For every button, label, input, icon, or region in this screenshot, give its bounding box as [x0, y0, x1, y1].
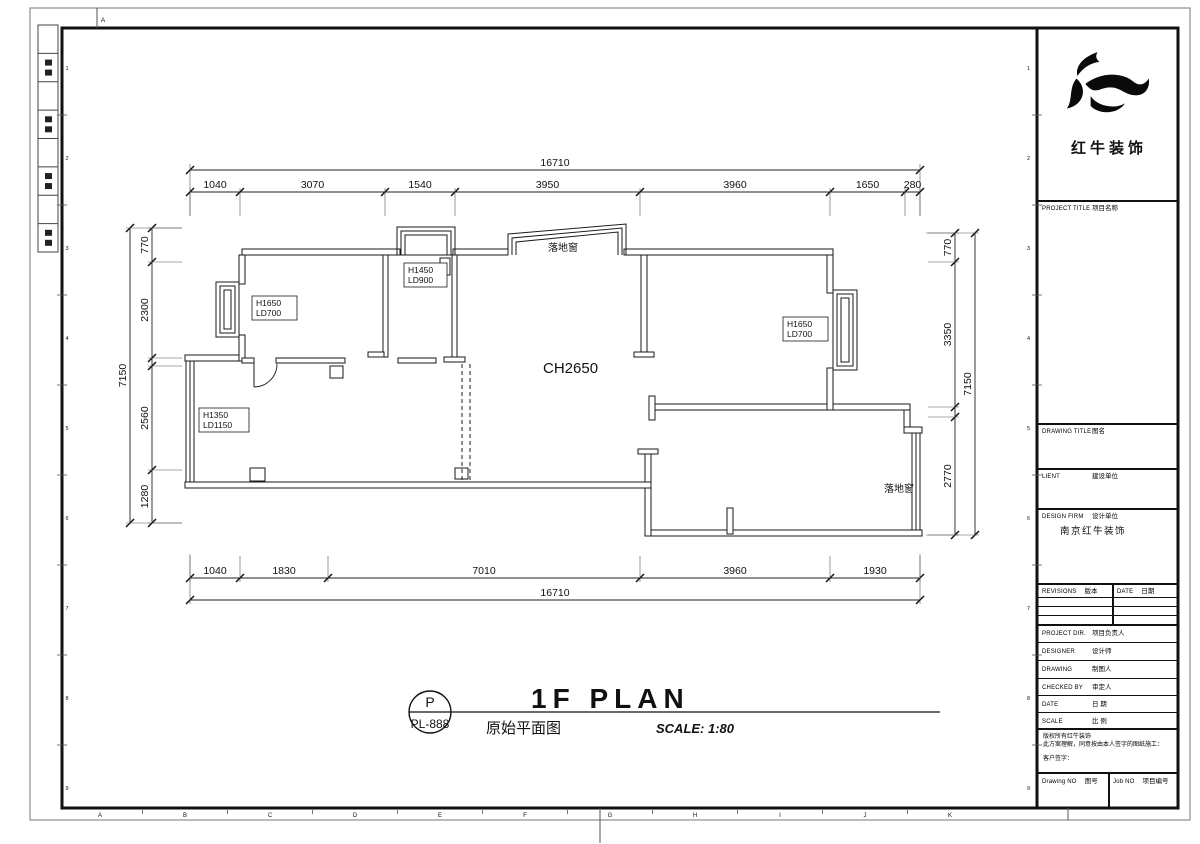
svg-text:H1350: H1350 [203, 410, 228, 420]
svg-text:LD700: LD700 [787, 329, 812, 339]
grid-number: 3 [1027, 246, 1030, 252]
grid-number: 8 [1027, 696, 1030, 702]
grid-number: 6 [65, 516, 68, 522]
drawing-sheet: { "sheet": { "top_left_grid_letter": "A"… [0, 0, 1200, 844]
titleblock-row-date: DATE日 期 [1042, 698, 1107, 708]
titleblock-divider [1038, 615, 1177, 616]
dimension-value: 2300 [139, 298, 151, 322]
design-firm-value: 南京红牛装饰 [1060, 523, 1126, 537]
grid-letter: D [353, 813, 358, 819]
grid-number: 7 [1027, 606, 1030, 612]
grid-number: 9 [65, 786, 68, 792]
plan-title-cn: 原始平面图 [486, 720, 561, 737]
titleblock-row-scale: SCALE比 例 [1042, 715, 1107, 725]
dimension-value: 1650 [856, 179, 880, 191]
svg-text:LD1150: LD1150 [203, 420, 232, 430]
floor-plan-walls [185, 249, 922, 536]
dimension-value: 2560 [139, 406, 151, 430]
titleblock-row-checked-by: CHECKED BY审定人 [1042, 681, 1112, 691]
grid-number: 5 [65, 426, 68, 432]
column-stub [250, 468, 265, 481]
svg-text:LD900: LD900 [408, 275, 433, 285]
titleblock-row-design-firm: DESIGN FIRM设计单位 [1042, 510, 1118, 520]
window-tag-top: H1450 LD900 [404, 263, 447, 287]
titleblock-row-client: LIENT建设单位 [1042, 470, 1118, 480]
fold-strip-mark [45, 116, 52, 122]
fold-strip-mark [45, 173, 52, 179]
grid-number: 9 [1027, 786, 1030, 792]
window-tag-left-lower: H1350 LD1150 [199, 408, 249, 432]
titleblock-row-designer: DESIGNER设计师 [1042, 645, 1112, 655]
dimension-value: 16710 [540, 587, 569, 599]
grid-letter: H [693, 813, 697, 819]
window-tag-right-bay: H1650 LD700 [783, 317, 828, 341]
grid-number: 4 [65, 336, 68, 342]
sheet-canvas: A [0, 0, 1200, 844]
grid-number: 3 [65, 246, 68, 252]
dimension-value: 16710 [540, 157, 569, 169]
titleblock-row-drawing: DRAWING制图人 [1042, 663, 1112, 673]
grid-letter: A [98, 813, 102, 819]
grid-number: 8 [65, 696, 68, 702]
number-column-divider [1108, 772, 1110, 808]
titleblock-row-drawing-title: DRAWING TITLE图名 [1042, 425, 1105, 435]
grid-number: 5 [1027, 426, 1030, 432]
company-logo [1066, 48, 1154, 132]
dimension-value: 280 [904, 179, 922, 191]
dimension-value: 770 [942, 239, 954, 257]
titleblock-divider [1038, 695, 1177, 696]
grid-number: 7 [65, 606, 68, 612]
dimension-value: 1280 [139, 485, 151, 509]
dimension-value: 7010 [472, 565, 496, 577]
floor-plan-openings [254, 363, 470, 482]
fold-strip-mark [45, 60, 52, 66]
fold-strip-mark [45, 240, 52, 246]
grid-letter: B [183, 813, 187, 819]
fold-strip-mark [45, 70, 52, 76]
dimension-value: 3350 [942, 323, 954, 347]
revisions-column-divider [1112, 583, 1114, 624]
dimension-value: 2770 [942, 464, 954, 488]
grid-number: 2 [1027, 156, 1030, 162]
titleblock-divider [1038, 660, 1177, 661]
copyright-line-2: 此方案理解，同意按由本人签字的图纸施工： [1043, 739, 1163, 748]
company-name: 红牛装饰 [1040, 137, 1178, 158]
fold-strip-mark [45, 230, 52, 236]
titleblock-divider [1038, 624, 1177, 626]
grid-letter: F [523, 813, 527, 819]
plan-title-en: 1F PLAN [531, 683, 690, 714]
right-window-label: 落地窗 [884, 482, 914, 495]
drawing-title-bar: P PL-888 1F PLAN 原始平面图 SCALE: 1:80 [409, 683, 940, 737]
dimension-value: 3960 [723, 565, 747, 577]
grid-number: 2 [65, 156, 68, 162]
dimension-value: 1040 [203, 179, 227, 191]
titleblock-divider [1038, 597, 1177, 598]
dimension-value: 770 [139, 236, 151, 254]
titleblock-revisions-header: REVISIONS版本 [1042, 585, 1097, 595]
grid-letter: E [438, 813, 442, 819]
titleblock-row-project-title: PROJECT TITLE项目名称 [1042, 202, 1118, 212]
grid-number: 1 [1027, 66, 1030, 72]
grid-number: 6 [1027, 516, 1030, 522]
top-window-label: 落地窗 [548, 241, 578, 254]
titleblock-divider [1038, 712, 1177, 713]
titleblock-revisions-date-header: DATE日期 [1117, 585, 1154, 595]
grid-letter: I [779, 813, 781, 819]
dimension-value: 7150 [962, 372, 974, 396]
titleblock-job-no: Job NO项目编号 [1113, 775, 1169, 785]
titleblock-divider [1038, 606, 1177, 607]
fold-strip-mark [45, 126, 52, 132]
titleblock-row-project-dir: PROJECT DIR.项目负责人 [1042, 627, 1125, 637]
grid-number: 4 [1027, 336, 1030, 342]
dimension-value: 3070 [301, 179, 325, 191]
dimension-value: 1930 [863, 565, 887, 577]
column-stub [330, 366, 343, 378]
svg-text:LD700: LD700 [256, 308, 281, 318]
floor-plan-labels: CH2650 落地窗 落地窗 H1650 LD700 H1450 LD900 H… [199, 241, 914, 495]
svg-text:H1650: H1650 [787, 319, 812, 329]
client-signature-line: 客户签字： [1043, 753, 1073, 762]
plan-scale: SCALE: 1:80 [656, 721, 735, 736]
svg-text:H1650: H1650 [256, 298, 281, 308]
titleblock-divider [1038, 642, 1177, 643]
grid-number: 1 [65, 66, 68, 72]
dimension-value: 7150 [117, 364, 129, 388]
dimension-value: 1830 [272, 565, 296, 577]
dimension-value: 1540 [408, 179, 432, 191]
titleblock-divider [1038, 678, 1177, 679]
titleblock-drawing-no: Drawing NO图号 [1042, 775, 1098, 785]
svg-text:H1450: H1450 [408, 265, 433, 275]
badge-letter: P [425, 694, 434, 710]
titleblock-divider [1038, 728, 1177, 730]
badge-number: PL-888 [411, 717, 450, 731]
fold-strip-mark [45, 183, 52, 189]
dimension-value: 3960 [723, 179, 747, 191]
door-swing-arc [254, 364, 277, 387]
dimension-value: 1040 [203, 565, 227, 577]
window-tag-left-bay: H1650 LD700 [252, 296, 297, 320]
grid-letter: C [268, 813, 273, 819]
grid-letter: J [864, 813, 867, 819]
ceiling-height-label: CH2650 [543, 360, 598, 377]
grid-letter: G [608, 813, 613, 819]
grid-letter: K [948, 813, 952, 819]
dimension-value: 3950 [536, 179, 560, 191]
grid-letter-top: A [101, 17, 106, 24]
